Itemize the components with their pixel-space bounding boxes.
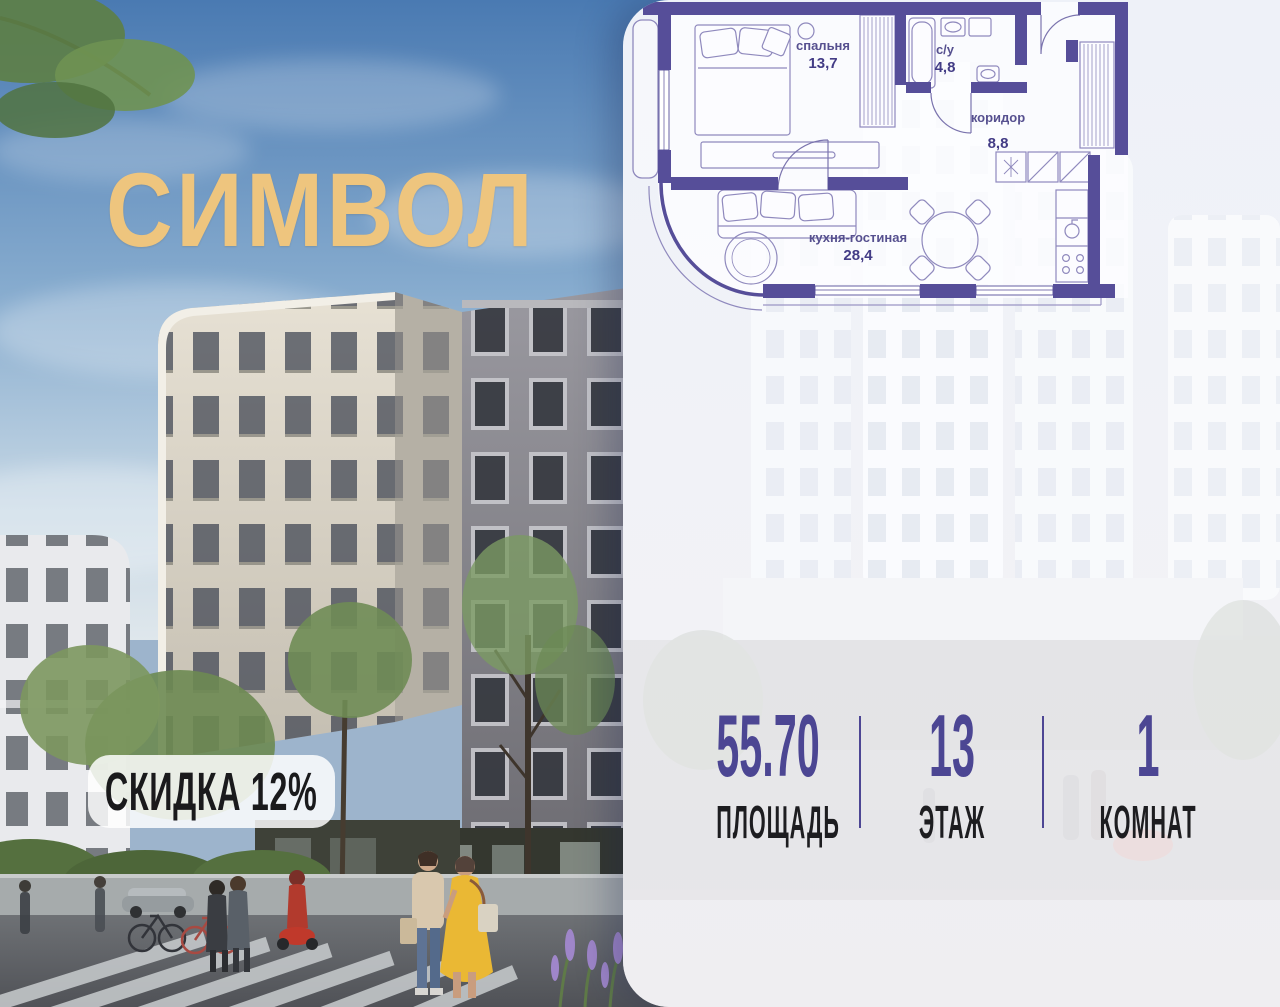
floor-plan: спальня 13,7 с/у 4,8 коридор 8,8 кухня-г…: [623, 0, 1128, 332]
discount-label: СКИДКА 12%: [105, 765, 318, 819]
room-area-kitchen-living: 28,4: [843, 247, 873, 264]
room-area-bedroom: 13,7: [808, 55, 837, 72]
room-label-bedroom: спальня: [796, 38, 850, 53]
discount-badge: СКИДКА 12%: [88, 755, 335, 828]
utility-row: [996, 152, 1090, 182]
room-label-bathroom: с/у: [936, 42, 955, 57]
entry-wardrobe: [1080, 42, 1114, 148]
kitchen-strip: [1056, 190, 1088, 282]
brand-logo: СИМВОЛ: [106, 158, 564, 263]
balcony: [633, 20, 658, 178]
info-panel: спальня 13,7 с/у 4,8 коридор 8,8 кухня-г…: [623, 0, 1280, 1007]
closet: [860, 15, 895, 127]
room-label-kitchen-living: кухня-гостиная: [809, 230, 907, 245]
room-label-corridor: коридор: [971, 110, 1025, 125]
listing-card[interactable]: СИМВОЛ СКИДКА 12%: [0, 0, 1280, 1007]
room-area-bathroom: 4,8: [935, 59, 956, 76]
room-area-corridor: 8,8: [988, 135, 1009, 152]
